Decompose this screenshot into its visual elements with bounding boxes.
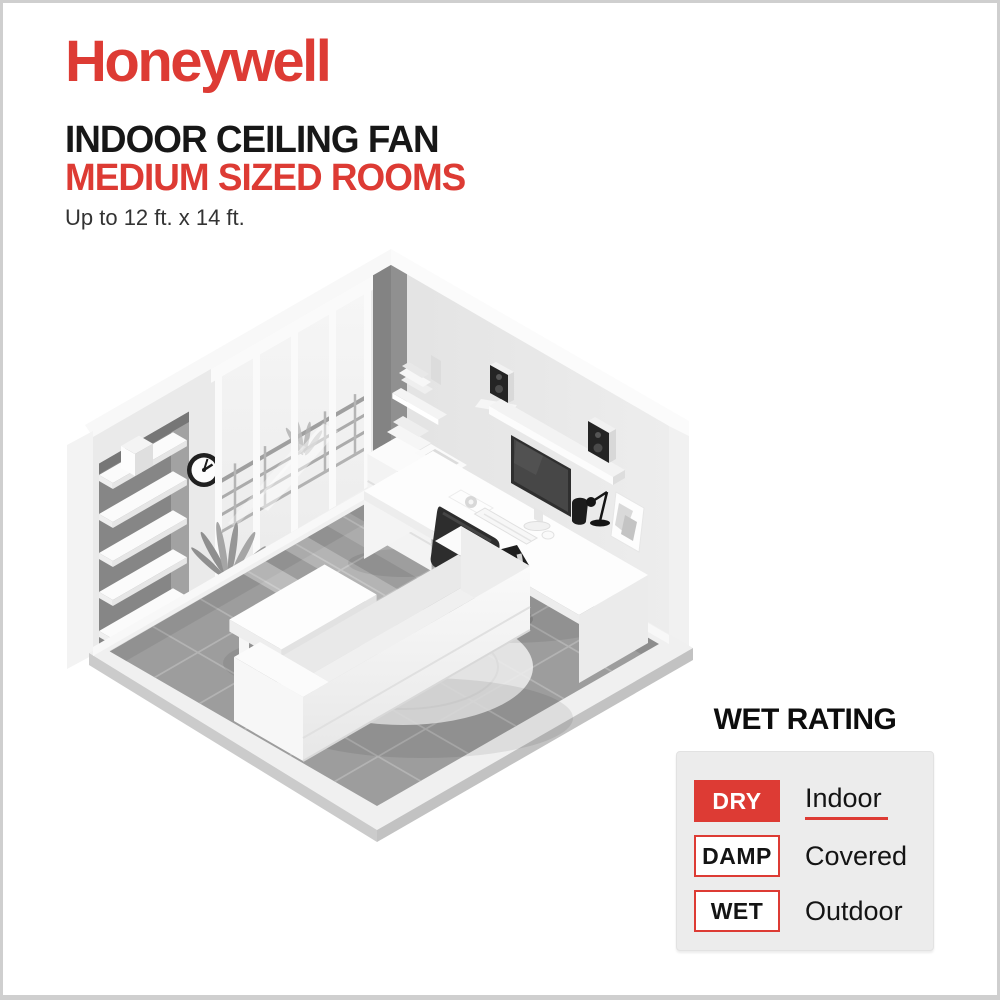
mouse bbox=[542, 531, 554, 539]
dry-badge: DRY bbox=[694, 780, 780, 822]
damp-label: Covered bbox=[805, 841, 907, 872]
wet-label: Outdoor bbox=[805, 896, 903, 927]
wet-badge: WET bbox=[694, 890, 780, 932]
rating-row-damp: DAMP Covered bbox=[694, 835, 933, 877]
wet-rating-heading: WET RATING bbox=[676, 703, 934, 737]
infographic-page: Honeywell INDOOR CEILING FAN MEDIUM SIZE… bbox=[0, 0, 1000, 1000]
damp-badge: DAMP bbox=[694, 835, 780, 877]
rating-row-wet: WET Outdoor bbox=[694, 890, 933, 932]
rating-row-dry: DRY Indoor bbox=[694, 780, 933, 822]
wet-rating-panel: DRY Indoor DAMP Covered WET Outdoor bbox=[676, 751, 934, 951]
dry-label: Indoor bbox=[805, 783, 888, 820]
